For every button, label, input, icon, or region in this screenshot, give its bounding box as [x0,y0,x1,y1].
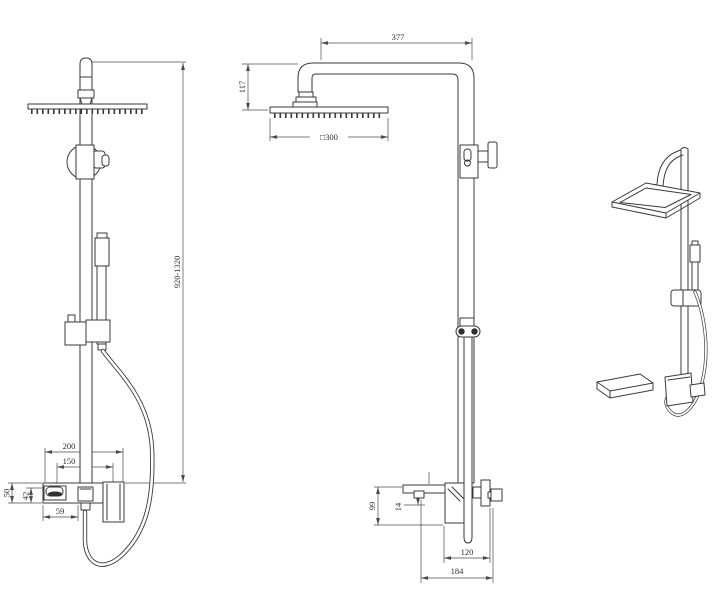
overhead-shower-front [28,104,147,112]
dim-handle-drop: 42 [21,488,46,503]
wall-bracket-side [460,142,497,178]
shower-column-side [298,63,474,483]
technical-drawing: 920-1320 200 150 50 42 [0,0,716,600]
hose-front [85,351,152,565]
dim-spout-lip-label: 14 [393,502,403,511]
hand-shower-head [95,238,109,266]
dim-overall-depth-label: 184 [451,566,465,576]
dim-handle-drop-label: 42 [21,492,31,501]
dim-side-mixer-height-label: 99 [367,502,377,511]
dim-arm-reach: 377 [321,32,472,60]
shower-column-front [78,58,94,483]
dim-head-drop: 117 [237,64,298,110]
column-joint-side [456,318,480,337]
dim-escutcheon-width: 59 [43,505,78,521]
dim-arm-reach-label: 377 [392,32,405,42]
perspective-head [612,183,700,218]
slider-bracket-front [65,315,110,345]
dim-mixer-body-height-label: 50 [2,489,12,498]
dim-head-size-label: □300 [320,132,338,142]
dim-head-size: □300 [270,118,388,142]
shower-arm-side [298,63,474,483]
spout-front [103,482,124,522]
overhead-shower-side [270,92,388,116]
side-view: 377 117 □300 99 14 [237,32,502,583]
diverter-bracket-front [67,145,109,179]
shower-plate-front [28,104,147,109]
dim-escutcheon-width-label: 59 [56,506,65,516]
shower-plate-side [270,107,388,113]
perspective-view [597,148,706,416]
dim-spout-reach-label: 120 [461,547,474,557]
mixer-side [403,483,467,523]
perspective-column [681,148,688,380]
hanging-hose-side [464,337,472,543]
dim-mixer-width-label: 200 [63,441,76,451]
dim-head-drop-label: 117 [237,81,247,93]
mixer-handle-side [473,480,502,506]
perspective-mixer [597,373,705,406]
front-view: 920-1320 200 150 50 42 [2,58,187,565]
dim-height-range-label: 920-1320 [172,256,182,289]
dim-inlet-centers-label: 150 [63,456,76,466]
